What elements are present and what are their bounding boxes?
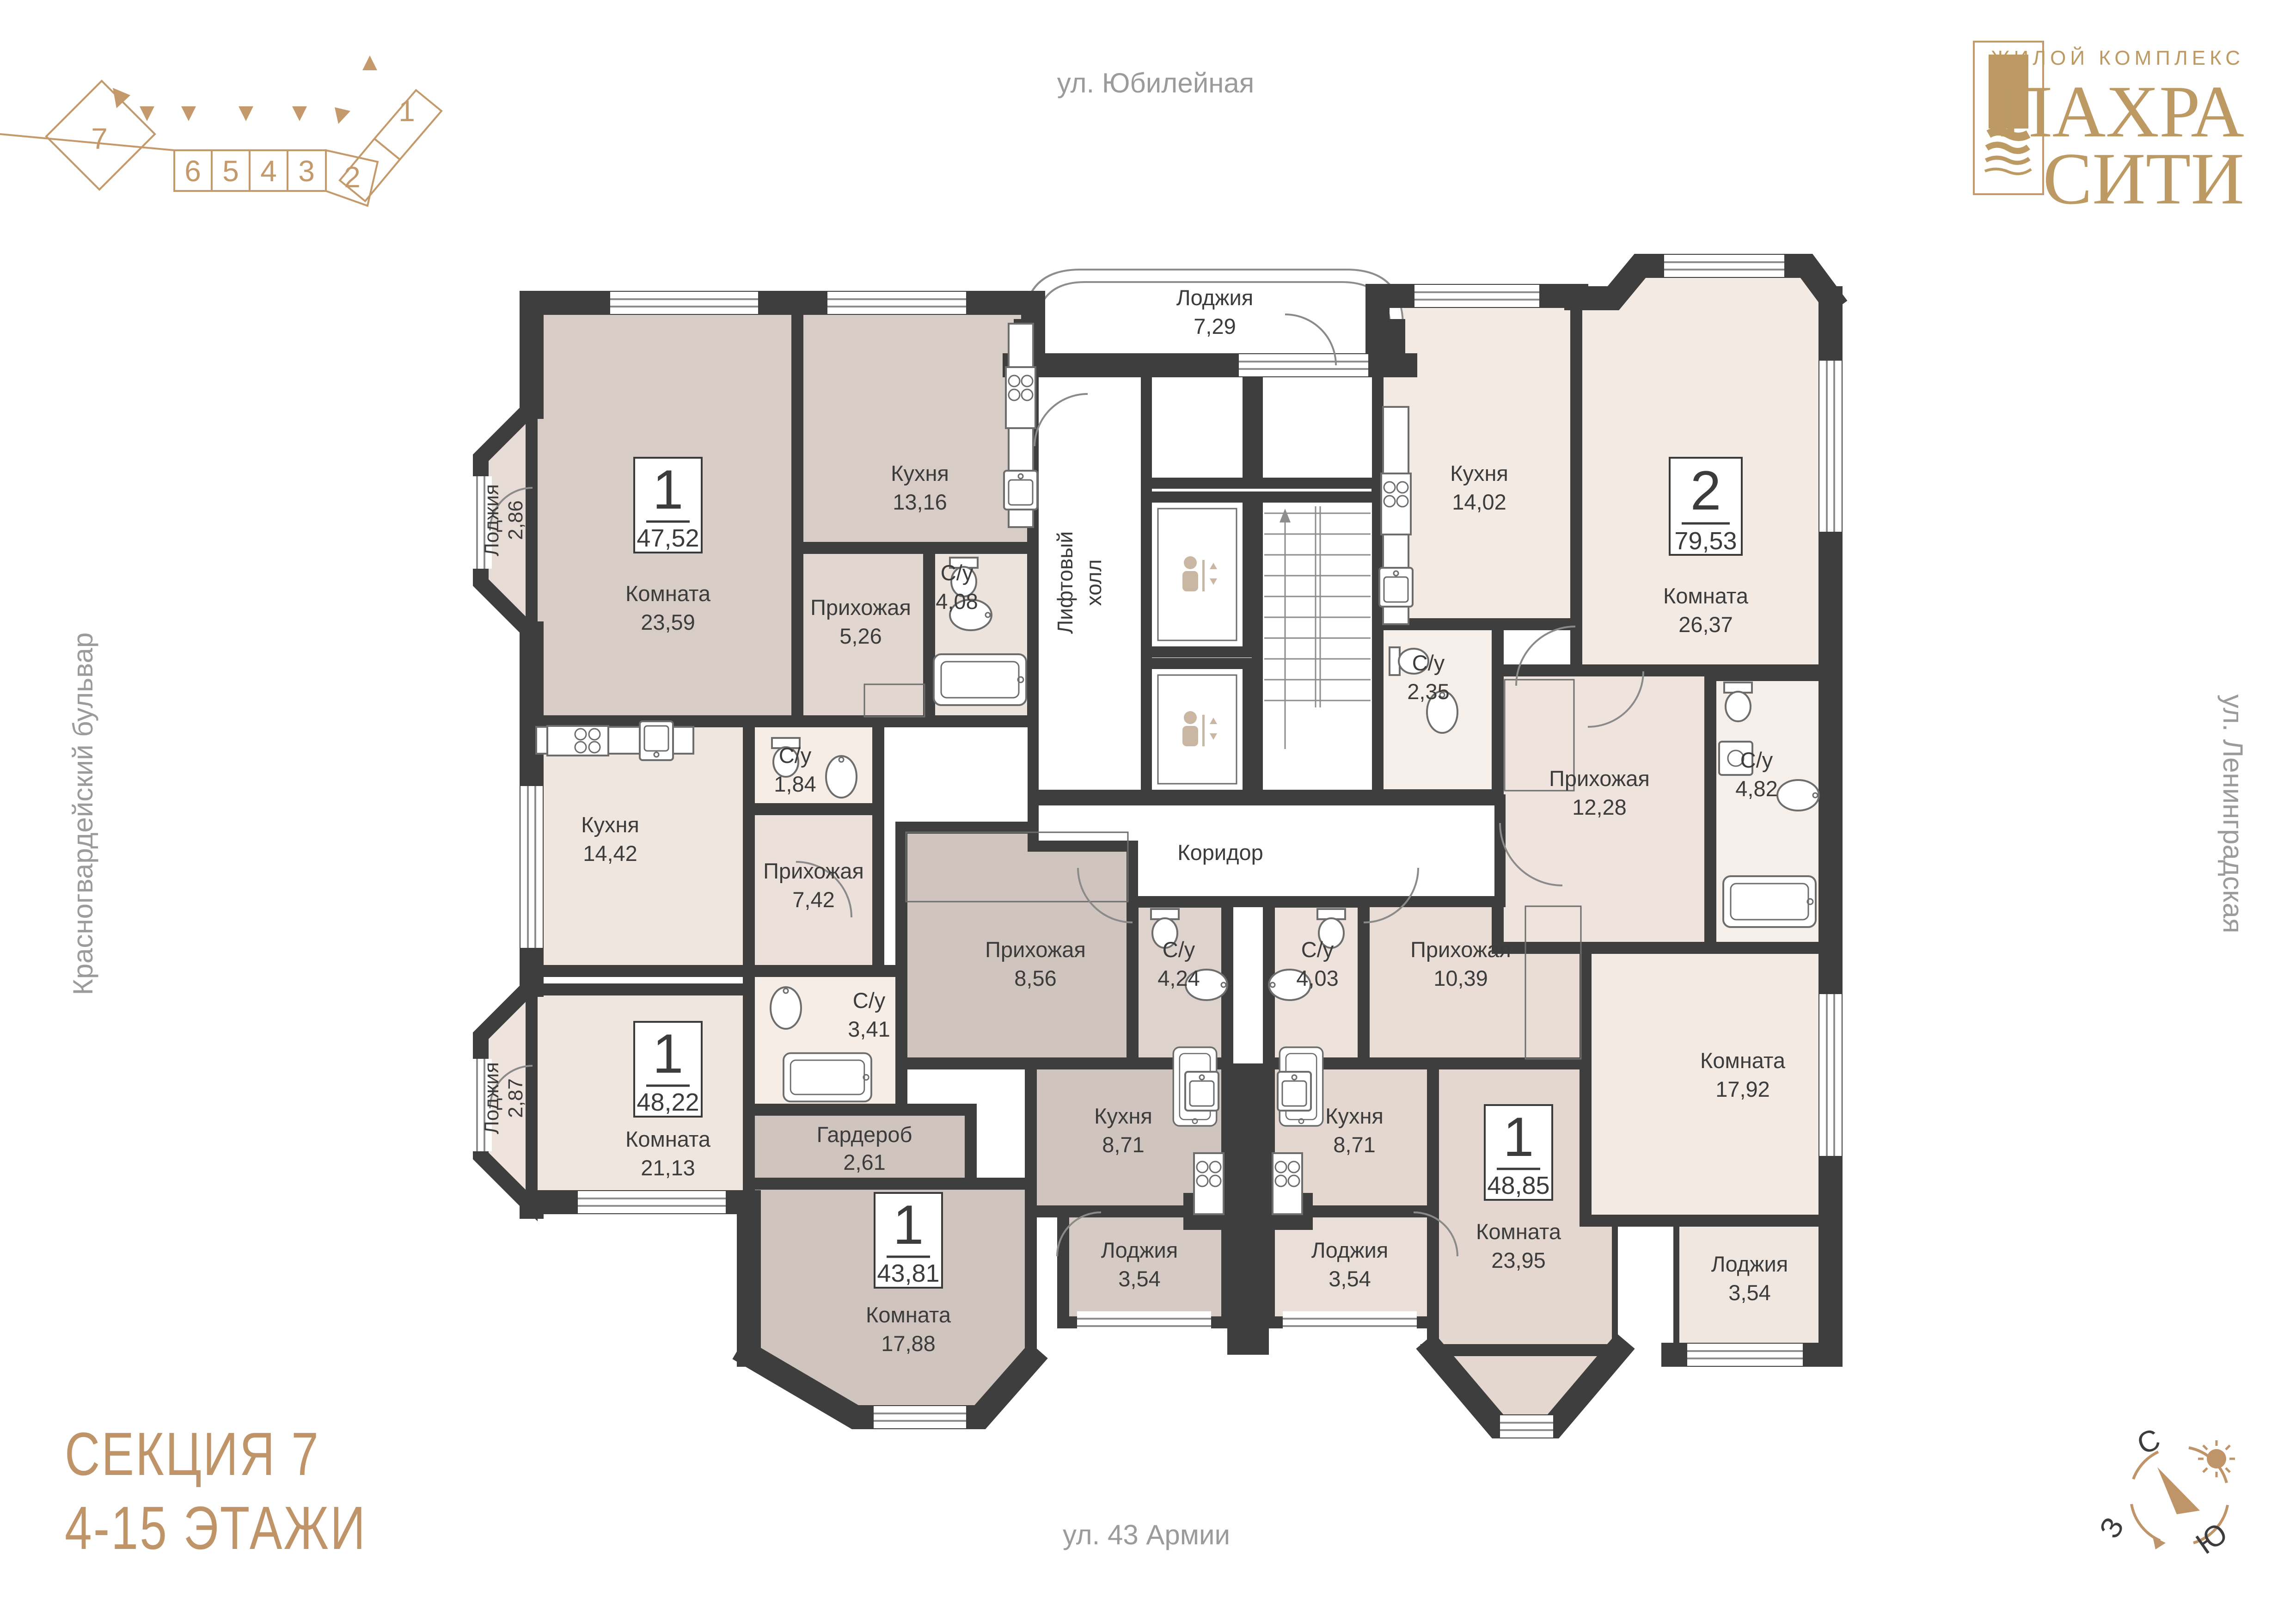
kitchen-sink-icon <box>1004 471 1037 510</box>
badge-area: 48,22 <box>637 1088 699 1116</box>
window <box>1414 285 1539 307</box>
stove-icon <box>1194 1153 1224 1214</box>
room-label: Кухня <box>1325 1104 1384 1128</box>
room-area: 10,39 <box>1433 966 1488 990</box>
room-area: 8,56 <box>1014 966 1056 990</box>
window <box>1687 1344 1803 1366</box>
window <box>1664 255 1784 277</box>
room-label: С/у <box>941 560 974 585</box>
room-label: Комната <box>1700 1048 1786 1073</box>
section-number[interactable]: 7 <box>91 122 108 155</box>
stairwell <box>1257 497 1378 795</box>
room-area: 8,71 <box>1102 1132 1144 1157</box>
badge-rooms: 1 <box>653 459 684 521</box>
room-area: 13,16 <box>893 490 947 514</box>
room-label: С/у <box>1740 748 1773 772</box>
window <box>1500 1415 1553 1438</box>
room-label: Гардероб <box>817 1122 912 1147</box>
section-number[interactable]: 4 <box>260 154 277 188</box>
section-number[interactable]: 1 <box>398 94 415 128</box>
badge-area: 48,85 <box>1487 1172 1549 1199</box>
room-area: 3,41 <box>848 1017 890 1041</box>
room-label: С/у <box>1412 651 1445 675</box>
window <box>827 292 966 314</box>
footer-title: СЕКЦИЯ 7 4-15 ЭТАЖИ <box>65 1420 367 1562</box>
room-label: Лоджия <box>1101 1238 1178 1262</box>
room-area: 8,71 <box>1333 1132 1375 1157</box>
balcony-gap <box>1618 1227 1673 1349</box>
floor-plan-svg: 1 47,52 Комната 23,59 Кухня 13,16 Прихож… <box>0 0 2296 1622</box>
sink-icon <box>1777 780 1819 811</box>
room-label: Прихожая <box>985 937 1086 962</box>
stove-icon <box>547 726 608 756</box>
street-label-bottom: ул. 43 Армии <box>1063 1519 1230 1550</box>
room-label: Комната <box>625 581 711 606</box>
kitchen-sink-icon <box>1379 568 1413 607</box>
service-room <box>1257 365 1378 483</box>
apartment-badge[interactable]: 1 47,52 <box>634 458 702 553</box>
window <box>1819 994 1842 1156</box>
bath-icon <box>934 654 1026 705</box>
room-area: 3,54 <box>1329 1266 1371 1291</box>
badge-rooms: 2 <box>1690 460 1721 522</box>
compass-arc-arrowhead <box>2153 1536 2166 1549</box>
apartment-badge[interactable]: 1 48,85 <box>1485 1105 1552 1200</box>
room-label: Прихожая <box>1410 937 1511 962</box>
section-diagram: 7 6 5 4 3 2 1 <box>0 55 441 206</box>
window <box>874 1406 966 1428</box>
svg-text:Лифтовый: Лифтовый <box>1053 531 1077 634</box>
room-area: 3,54 <box>1728 1280 1770 1305</box>
sink-icon <box>826 756 857 798</box>
room-area: 12,28 <box>1572 795 1627 819</box>
room-label: С/у <box>1301 937 1334 962</box>
room-label: С/у <box>779 743 812 768</box>
room-label: Прихожая <box>810 595 911 620</box>
bath-icon <box>1723 876 1816 927</box>
window <box>1077 1311 1211 1333</box>
room-label: Кухня <box>891 461 949 485</box>
logo: ЖИЛОЙ КОМПЛЕКС ПАХРА СИТИ <box>1974 42 2244 220</box>
section-number[interactable]: 6 <box>184 154 201 188</box>
room-label: Кухня <box>1450 461 1508 485</box>
room-area: 7,29 <box>1194 314 1236 338</box>
room-label: Кухня <box>1094 1104 1152 1128</box>
stove-icon <box>1273 1153 1302 1214</box>
apartment-badge[interactable]: 2 79,53 <box>1670 458 1742 555</box>
kitchen-sink-icon <box>1185 1072 1218 1111</box>
apartment-badge[interactable]: 1 48,22 <box>634 1022 702 1117</box>
room-area: 17,92 <box>1715 1077 1770 1101</box>
room-area: 17,88 <box>881 1331 936 1356</box>
room-label: Лоджия <box>1311 1238 1389 1262</box>
room-area: 5,26 <box>839 624 882 648</box>
window <box>1283 1311 1417 1333</box>
room-area: 1,84 <box>774 772 816 796</box>
section-number[interactable]: 5 <box>222 154 239 188</box>
section-title: СЕКЦИЯ 7 <box>65 1420 320 1488</box>
corridor-label: Коридор <box>1177 840 1263 865</box>
window <box>610 292 758 314</box>
room-label: Комната <box>1476 1219 1561 1244</box>
bath-icon <box>784 1053 871 1102</box>
kitchen-sink-icon <box>1278 1072 1311 1111</box>
compass-west: З <box>2093 1511 2131 1543</box>
room-label: Кухня <box>581 812 639 837</box>
stove-icon <box>1006 367 1035 428</box>
badge-rooms: 1 <box>653 1023 684 1085</box>
room-area: 3,54 <box>1118 1266 1160 1291</box>
room-area: 14,02 <box>1452 490 1506 514</box>
svg-text:2,86: 2,86 <box>504 500 527 540</box>
sink-icon <box>771 987 801 1029</box>
compass-arrow <box>2157 1467 2200 1514</box>
svg-text:Лоджия: Лоджия <box>480 484 503 556</box>
compass-south: Ю <box>2190 1516 2233 1561</box>
room-label: Прихожая <box>763 859 864 883</box>
room-label: Лоджия <box>1711 1252 1788 1276</box>
toilet-icon <box>1724 682 1752 721</box>
svg-text:Лоджия: Лоджия <box>480 1062 503 1134</box>
window <box>1819 361 1842 532</box>
room-area: 21,13 <box>641 1155 695 1180</box>
street-label-top: ул. Юбилейная <box>1057 68 1254 98</box>
room-area: 23,95 <box>1491 1248 1546 1272</box>
room-label: С/у <box>853 988 886 1013</box>
room-area: 2,35 <box>1407 679 1449 704</box>
service-room <box>1146 365 1248 483</box>
room-area: 26,37 <box>1678 612 1733 637</box>
badge-rooms: 1 <box>893 1194 924 1256</box>
room-area: 2,61 <box>843 1150 885 1174</box>
room-label: Комната <box>866 1303 951 1327</box>
badge-area: 47,52 <box>637 524 699 552</box>
compass: С З Ю <box>2093 1422 2235 1561</box>
room-area: 14,42 <box>583 841 637 866</box>
badge-area: 43,81 <box>877 1260 939 1287</box>
room-area: 4,03 <box>1296 966 1338 990</box>
room-label: С/у <box>1163 937 1195 962</box>
room-label: Комната <box>625 1127 711 1151</box>
room-area: 4,08 <box>936 589 978 614</box>
section-arrows <box>113 55 377 124</box>
window <box>520 786 543 948</box>
badge-area: 79,53 <box>1674 527 1737 555</box>
room-label: Комната <box>1663 584 1749 608</box>
street-label-left: Красногвардейский бульвар <box>67 633 98 995</box>
room-komnata <box>1586 948 1831 1221</box>
room-area: 4,24 <box>1157 966 1200 990</box>
kitchen-sink-icon <box>640 721 673 760</box>
floors-title: 4-15 ЭТАЖИ <box>65 1494 367 1562</box>
room-label: Лоджия <box>1176 285 1254 310</box>
sun-icon <box>2198 1440 2235 1477</box>
logo-line2: СИТИ <box>2043 137 2244 220</box>
stove-icon <box>1381 473 1411 535</box>
compass-north: С <box>2132 1422 2165 1461</box>
svg-text:2,87: 2,87 <box>504 1078 527 1118</box>
section-number[interactable]: 3 <box>298 154 315 188</box>
window <box>1239 354 1368 376</box>
floor-plan-page: 1 47,52 Комната 23,59 Кухня 13,16 Прихож… <box>0 0 2296 1622</box>
room-area: 7,42 <box>792 887 834 912</box>
badge-rooms: 1 <box>1503 1106 1534 1168</box>
window <box>578 1191 726 1213</box>
room-area: 23,59 <box>641 610 695 634</box>
room-area: 4,82 <box>1735 776 1777 801</box>
logo-tagline: ЖИЛОЙ КОМПЛЕКС <box>1991 46 2244 69</box>
section-number[interactable]: 2 <box>344 160 361 194</box>
svg-text:холл: холл <box>1082 559 1106 606</box>
room-label: Прихожая <box>1549 766 1650 791</box>
street-label-right: ул. Ленинградская <box>2217 694 2248 934</box>
apartment-badge[interactable]: 1 43,81 <box>875 1193 942 1288</box>
